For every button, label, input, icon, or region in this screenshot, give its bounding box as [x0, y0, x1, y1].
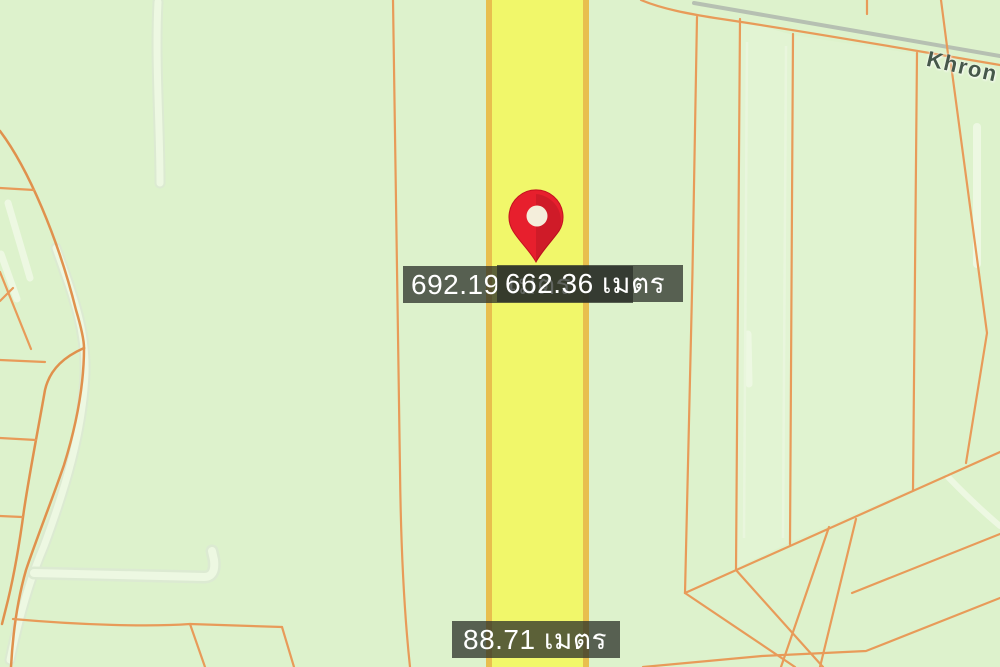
light-parcel	[789, 35, 917, 543]
parcel-line	[393, 0, 410, 667]
parcel-line	[0, 272, 31, 349]
parcel-line	[0, 438, 36, 440]
parcel-line	[685, 17, 697, 593]
highway-fill	[492, 0, 583, 667]
parcel-line	[0, 360, 45, 362]
parcel-line	[2, 348, 84, 624]
stream	[748, 334, 749, 384]
parcel-line	[820, 519, 856, 667]
stream	[8, 203, 30, 278]
map-layer	[0, 0, 1000, 667]
parcel-line	[0, 188, 34, 190]
distance-label-88: 88.71 เมตร	[452, 621, 620, 658]
parcel-line	[190, 624, 205, 667]
parcel-line	[852, 534, 1000, 593]
map-viewport[interactable]: Khron 692.19 เมตร 662.36 เมตร 88.71 เมตร	[0, 0, 1000, 667]
parcel-line	[282, 627, 294, 667]
light-parcel-layer	[736, 20, 917, 568]
pin-hole	[527, 206, 548, 227]
parcel-line	[950, 57, 987, 463]
stream	[948, 477, 1000, 526]
parcel-line	[0, 516, 22, 517]
highway-road	[486, 0, 589, 667]
distance-label-662: 662.36 เมตร	[497, 265, 683, 302]
parcel-line	[13, 619, 282, 627]
stream	[34, 551, 214, 577]
parcel-line	[0, 131, 84, 348]
stream	[157, 2, 160, 183]
